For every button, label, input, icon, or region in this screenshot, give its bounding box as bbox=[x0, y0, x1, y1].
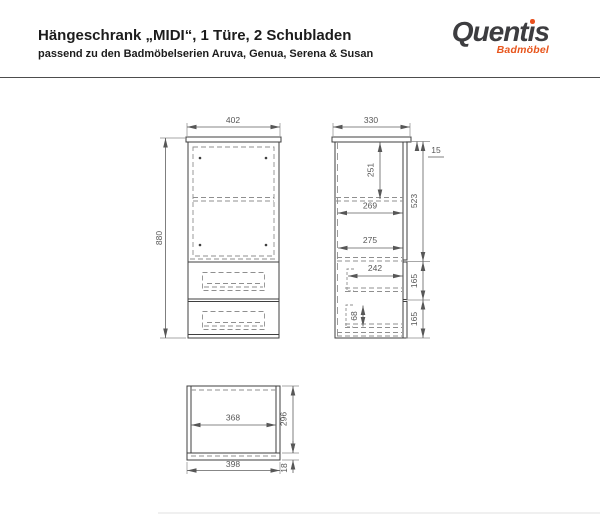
side-view: 330 251 269 275 242 68 523 165 bbox=[332, 115, 444, 338]
top-view-outline bbox=[187, 386, 280, 460]
hinge-dot bbox=[199, 244, 202, 247]
top-view: 368 296 18 398 bbox=[187, 386, 299, 474]
hinge-dot bbox=[199, 157, 202, 160]
side-door-front bbox=[403, 142, 407, 260]
dim-front-width: 402 bbox=[226, 115, 240, 125]
side-drawer2-front bbox=[403, 302, 407, 339]
dim-top-depth: 296 bbox=[279, 412, 289, 426]
dim-outer-width: 398 bbox=[226, 459, 240, 469]
dim-drawer1-front-height: 165 bbox=[409, 274, 419, 288]
dim-back-panel-offset: 18 bbox=[279, 463, 289, 473]
front-body-outline bbox=[188, 142, 279, 338]
dim-side-depth: 330 bbox=[364, 115, 378, 125]
dim-drawer1-inner-depth: 275 bbox=[363, 235, 377, 245]
dim-door-height: 523 bbox=[409, 194, 419, 208]
dim-top-offset: 15 bbox=[431, 145, 441, 155]
front-top-panel bbox=[186, 137, 281, 142]
hinge-dot bbox=[265, 157, 268, 160]
hinge-dot bbox=[265, 244, 268, 247]
front-view: 402 880 bbox=[154, 115, 281, 338]
dim-shelf-depth: 269 bbox=[363, 201, 377, 211]
dim-drawer-inner-height: 68 bbox=[349, 311, 359, 321]
dim-inner-width: 368 bbox=[226, 413, 240, 423]
dim-drawer2-front-height: 165 bbox=[409, 312, 419, 326]
dim-front-height: 880 bbox=[154, 231, 164, 245]
technical-drawing: 402 880 bbox=[0, 0, 600, 516]
dim-upper-inner-height: 251 bbox=[366, 163, 376, 177]
side-top-panel bbox=[332, 137, 411, 142]
dim-drawer2-inner-depth: 242 bbox=[368, 263, 382, 273]
side-drawer1-front bbox=[403, 262, 407, 300]
spec-sheet-page: Hängeschrank „MIDI“, 1 Türe, 2 Schublade… bbox=[0, 0, 600, 516]
